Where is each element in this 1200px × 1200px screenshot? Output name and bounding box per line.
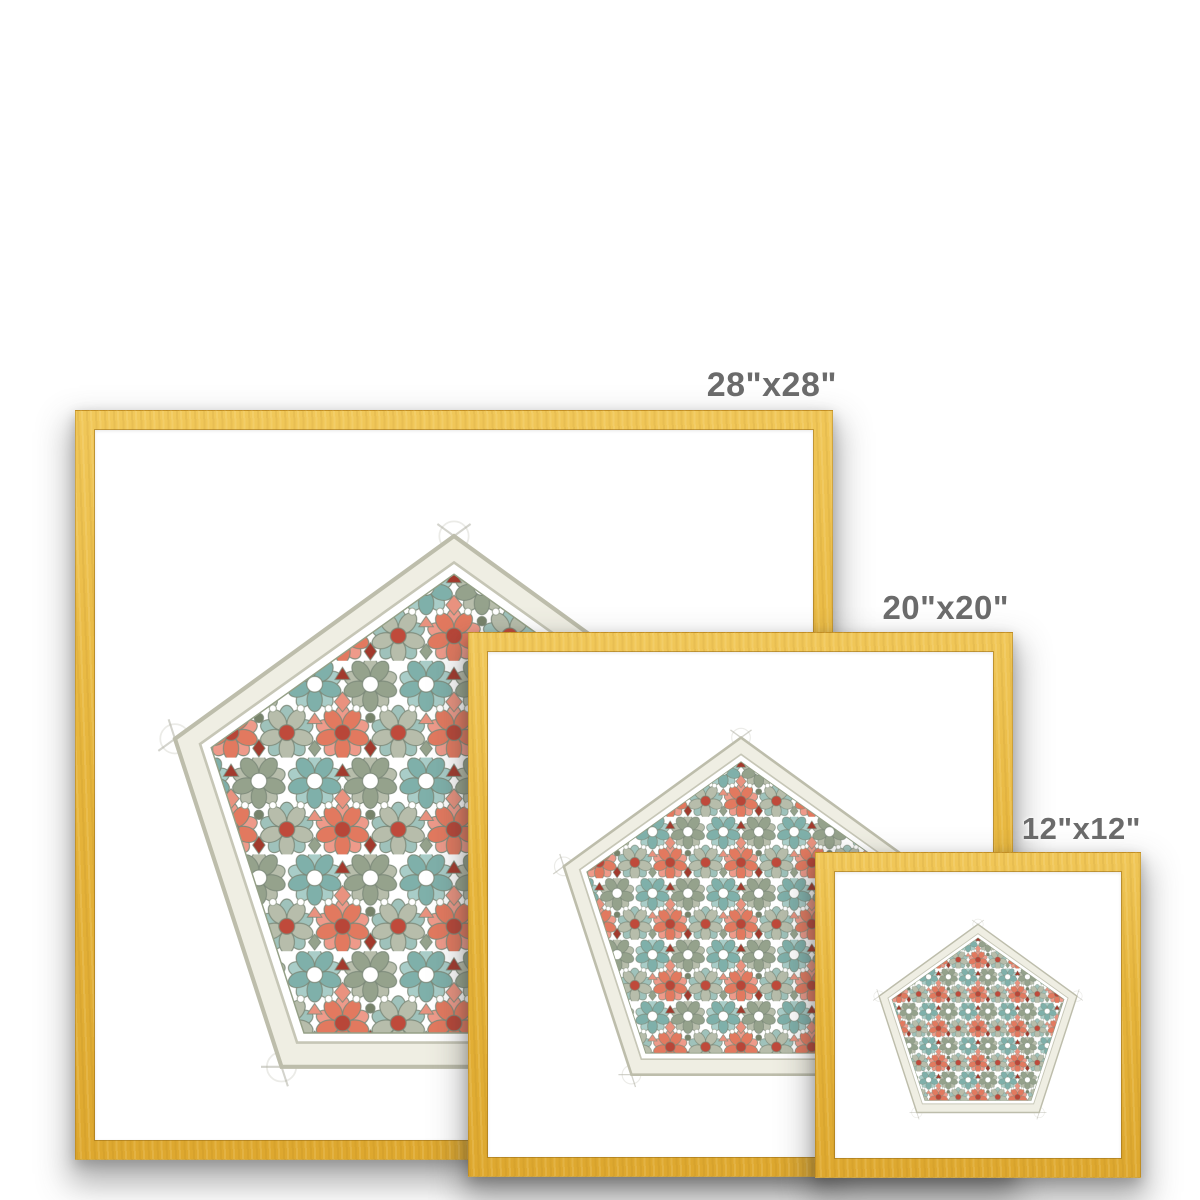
size-label-12x12: 12"x12" (1022, 811, 1141, 847)
size-label-28x28: 28"x28" (707, 366, 837, 405)
mat-12x12 (835, 872, 1121, 1158)
gold-frame-12x12 (815, 852, 1141, 1178)
frame-group-12x12: 12"x12" (815, 852, 1141, 1178)
artwork-pentagon-print-12x12 (868, 917, 1089, 1123)
size-label-20x20: 20"x20" (882, 589, 1009, 627)
product-size-comparison-stage: 28"x28" 20"x20" 12"x12" (0, 0, 1200, 1200)
